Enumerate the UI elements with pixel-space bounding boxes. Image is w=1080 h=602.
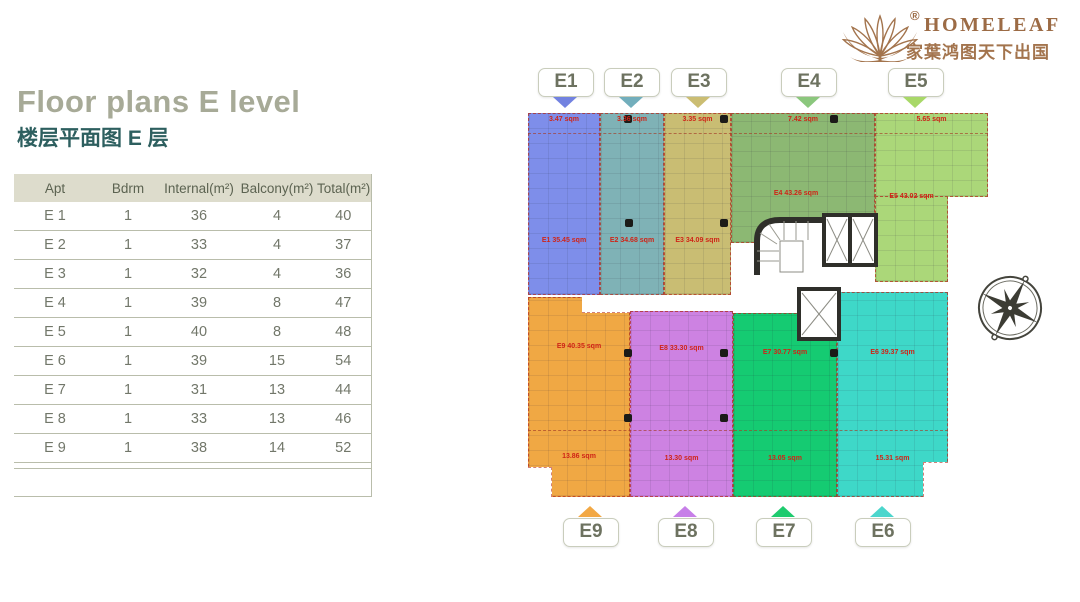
- table-row: E 1136440: [14, 202, 371, 231]
- cell-apt: E 2: [14, 231, 96, 260]
- cell-apt: E 9: [14, 434, 96, 463]
- table-header-row: Apt Bdrm Internal(m²) Balcony(m²) Total(…: [14, 174, 371, 202]
- brand-logo: ® HOMELEAF 家葉鸿图天下出国: [840, 2, 1070, 62]
- corner-cutout: [923, 462, 948, 497]
- unit-marker-E9: E9: [563, 518, 619, 547]
- corridor-cutout: [582, 297, 630, 313]
- cell-apt: E 7: [14, 376, 96, 405]
- registered-mark: ®: [910, 8, 920, 23]
- cell-bdrm: 1: [96, 289, 160, 318]
- unit-E8: [630, 311, 733, 497]
- stairwell: [750, 213, 824, 275]
- col-internal: Internal(m²): [160, 174, 238, 202]
- cell-internal: 32: [160, 260, 238, 289]
- page-title: Floor plans E level: [17, 84, 300, 120]
- column-marker: [625, 219, 633, 227]
- cell-total: 37: [316, 231, 371, 260]
- elevator-bank: [822, 213, 878, 267]
- col-apt: Apt: [14, 174, 96, 202]
- unit-area-label: E7 30.77 sqm: [733, 349, 837, 357]
- cell-total: 52: [316, 434, 371, 463]
- unit-area-label: E3 34.09 sqm: [664, 237, 731, 245]
- table-row: E 61391554: [14, 347, 371, 376]
- cell-apt: E 4: [14, 289, 96, 318]
- cell-bdrm: 1: [96, 318, 160, 347]
- marker-arrow-up: [771, 506, 795, 517]
- unit-marker-E2: E2: [604, 68, 660, 97]
- cell-total: 46: [316, 405, 371, 434]
- balcony-area-label: 3.36 sqm: [600, 116, 664, 124]
- table-row: E 2133437: [14, 231, 371, 260]
- balcony-divider: [528, 430, 948, 431]
- cell-total: 48: [316, 318, 371, 347]
- unit-area-label: E5 43.02 sqm: [875, 193, 948, 201]
- cell-internal: 33: [160, 405, 238, 434]
- page-subtitle-cn: 楼层平面图 E 层: [17, 122, 169, 152]
- marker-arrow-up: [870, 506, 894, 517]
- brand-name: HOMELEAF: [924, 14, 1061, 37]
- marker-arrow-up: [673, 506, 697, 517]
- cell-balcony: 8: [238, 289, 316, 318]
- balcony-area-label: 15.31 sqm: [837, 455, 948, 463]
- cell-balcony: 14: [238, 434, 316, 463]
- table-row: E 81331346: [14, 405, 371, 434]
- column-marker: [720, 219, 728, 227]
- corner-cutout: [528, 467, 552, 497]
- unit-area-label: E2 34.68 sqm: [600, 237, 664, 245]
- apartment-table: Apt Bdrm Internal(m²) Balcony(m²) Total(…: [14, 174, 372, 497]
- cell-bdrm: 1: [96, 260, 160, 289]
- cell-apt: E 6: [14, 347, 96, 376]
- cell-internal: 36: [160, 202, 238, 231]
- cell-internal: 31: [160, 376, 238, 405]
- column-marker: [720, 414, 728, 422]
- unit-marker-E5: E5: [888, 68, 944, 97]
- cell-balcony: 4: [238, 202, 316, 231]
- cell-balcony: 13: [238, 405, 316, 434]
- balcony-divider: [528, 133, 988, 134]
- cell-bdrm: 1: [96, 347, 160, 376]
- unit-E3: [664, 113, 731, 295]
- col-total: Total(m²): [316, 174, 371, 202]
- compass-rose-icon: [974, 272, 1046, 344]
- cell-apt: E 5: [14, 318, 96, 347]
- balcony-area-label: 5.65 sqm: [875, 116, 988, 124]
- unit-area-label: E1 35.45 sqm: [528, 237, 600, 245]
- unit-E5: [875, 113, 988, 197]
- cell-apt: E 3: [14, 260, 96, 289]
- cell-bdrm: 1: [96, 434, 160, 463]
- unit-marker-E8: E8: [658, 518, 714, 547]
- balcony-area-label: 13.05 sqm: [733, 455, 837, 463]
- table-row: E 5140848: [14, 318, 371, 347]
- brand-tagline-cn: 家葉鸿图天下出国: [906, 38, 1050, 63]
- cell-apt: E 1: [14, 202, 96, 231]
- table-row: E 4139847: [14, 289, 371, 318]
- cell-bdrm: 1: [96, 231, 160, 260]
- cell-balcony: 8: [238, 318, 316, 347]
- cell-balcony: 4: [238, 231, 316, 260]
- cell-bdrm: 1: [96, 405, 160, 434]
- floor-plan: 3.47 sqm 3.36 sqm 3.35 sqm 7.42 sqm 5.65…: [525, 105, 992, 505]
- cell-total: 40: [316, 202, 371, 231]
- cell-internal: 33: [160, 231, 238, 260]
- cell-internal: 39: [160, 347, 238, 376]
- cell-total: 36: [316, 260, 371, 289]
- table-row: E 71311344: [14, 376, 371, 405]
- cell-balcony: 15: [238, 347, 316, 376]
- cell-total: 47: [316, 289, 371, 318]
- unit-area-label: E4 43.26 sqm: [731, 190, 861, 198]
- cell-bdrm: 1: [96, 202, 160, 231]
- table-spacer-row: [14, 469, 371, 497]
- balcony-area-label: 13.30 sqm: [630, 455, 733, 463]
- unit-E5: [875, 196, 948, 282]
- col-bdrm: Bdrm: [96, 174, 160, 202]
- unit-marker-E1: E1: [538, 68, 594, 97]
- balcony-area-label: 3.47 sqm: [528, 116, 600, 124]
- col-balcony: Balcony(m²): [238, 174, 316, 202]
- unit-area-label: E8 33.30 sqm: [630, 345, 733, 353]
- balcony-area-label: 3.35 sqm: [664, 116, 731, 124]
- balcony-area-label: 13.86 sqm: [528, 453, 630, 461]
- column-marker: [624, 414, 632, 422]
- cell-balcony: 13: [238, 376, 316, 405]
- unit-E2: [600, 113, 664, 295]
- elevator-shaft: [797, 287, 841, 341]
- unit-E1: [528, 113, 600, 295]
- table-row: E 91381452: [14, 434, 371, 463]
- unit-area-label: E9 40.35 sqm: [528, 343, 630, 351]
- unit-marker-E4: E4: [781, 68, 837, 97]
- cell-bdrm: 1: [96, 376, 160, 405]
- slide: Floor plans E level 楼层平面图 E 层 ® HOMELEAF…: [0, 0, 1080, 602]
- cell-apt: E 8: [14, 405, 96, 434]
- cell-total: 44: [316, 376, 371, 405]
- balcony-area-label: 7.42 sqm: [731, 116, 875, 124]
- cell-internal: 40: [160, 318, 238, 347]
- table-row: E 3132436: [14, 260, 371, 289]
- unit-area-label: E6 39.37 sqm: [837, 349, 948, 357]
- cell-internal: 38: [160, 434, 238, 463]
- cell-balcony: 4: [238, 260, 316, 289]
- marker-arrow-up: [578, 506, 602, 517]
- cell-total: 54: [316, 347, 371, 376]
- unit-marker-E7: E7: [756, 518, 812, 547]
- unit-marker-E6: E6: [855, 518, 911, 547]
- unit-marker-E3: E3: [671, 68, 727, 97]
- cell-internal: 39: [160, 289, 238, 318]
